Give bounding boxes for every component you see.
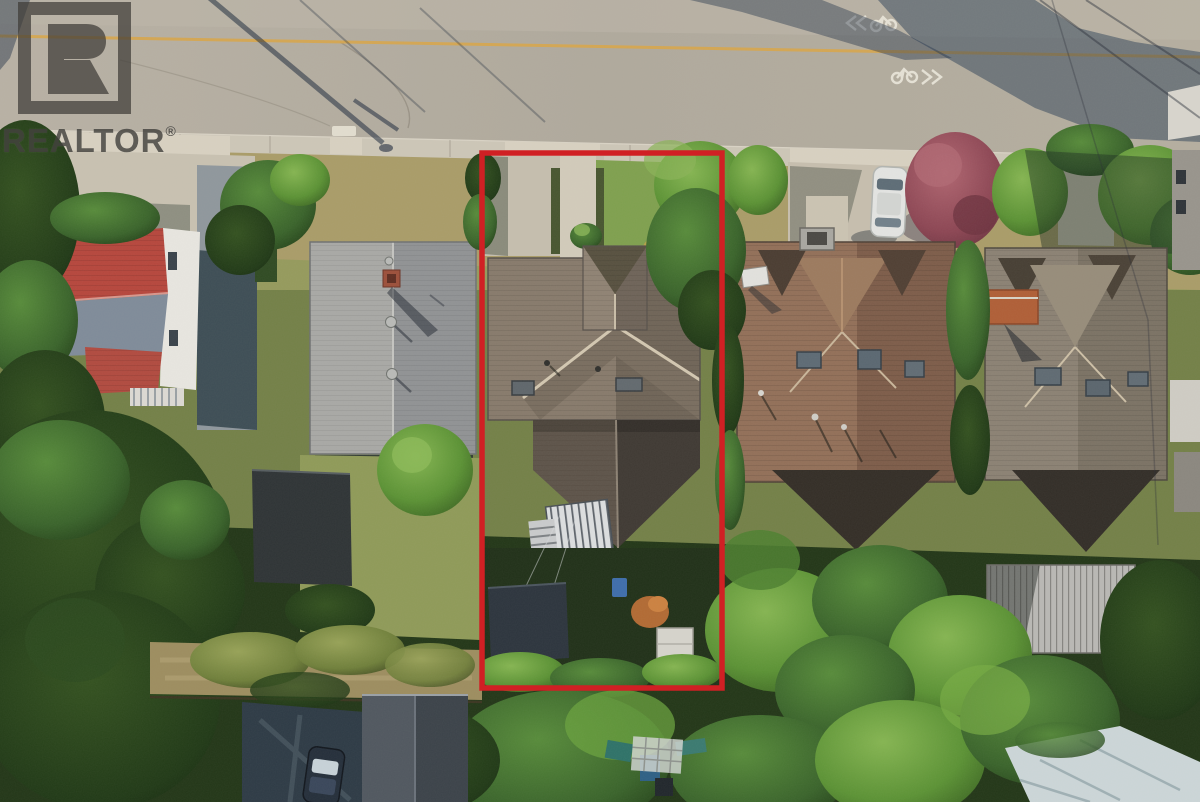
aerial-scene-art [0, 0, 1200, 802]
aerial-property-photo: REALTOR® [0, 0, 1200, 802]
film-grain [0, 0, 1200, 802]
